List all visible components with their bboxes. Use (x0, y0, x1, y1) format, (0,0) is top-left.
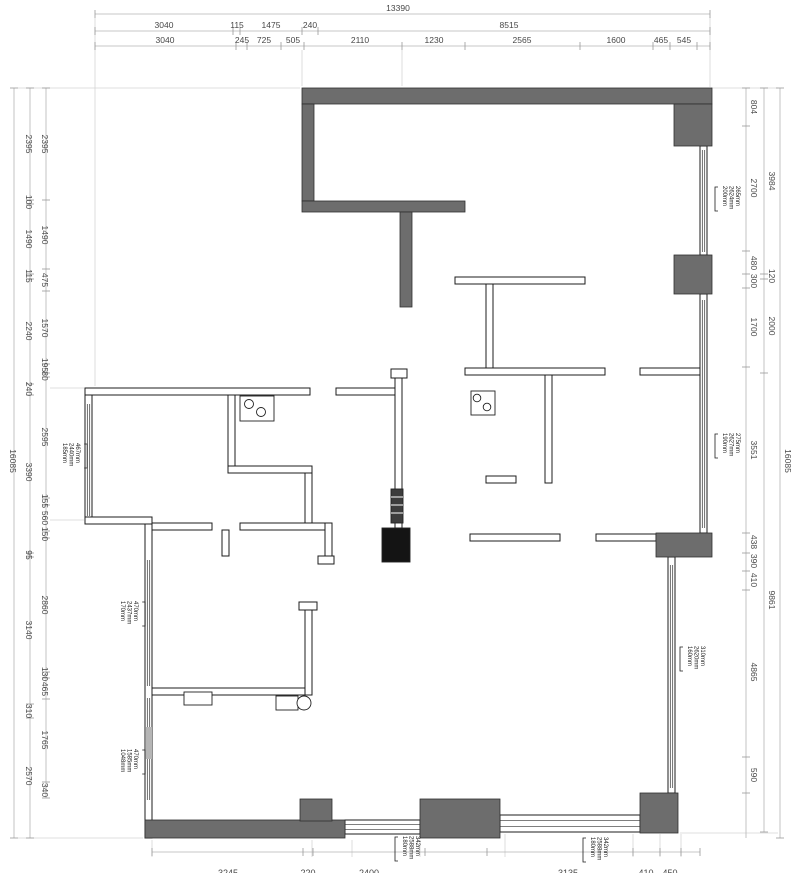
wall-bottom-mid (420, 799, 500, 838)
window-tag-bottom-right: 180mm2588mm342mm (583, 837, 608, 862)
window-tag-bracket (680, 647, 683, 671)
dim-label: 725 (257, 35, 271, 45)
window-tag-text: 265mm (734, 186, 740, 206)
window-tag-text: 185mm (61, 443, 67, 463)
window-tag-text: 2588mm (407, 836, 413, 859)
dim-label: 1700 (749, 318, 759, 337)
window-tag-left-low: 1048mm1585mm470mm (119, 749, 145, 774)
window-tag-text: 275mm (734, 433, 740, 453)
window-tag-bracket (715, 434, 718, 458)
wall-mid-horiz-a (465, 368, 605, 375)
dim-label: 1490 (40, 226, 50, 245)
dim-label: 2565 (513, 35, 532, 45)
dim-label: 240 (24, 382, 34, 396)
dim-label: 310 (24, 704, 34, 718)
dim-label: 2595 (40, 428, 50, 447)
dim-label: 130 (40, 667, 50, 681)
dim-label: 95 (24, 550, 34, 560)
dim-label: 3040 (155, 20, 174, 30)
window-tag-bracket (395, 837, 398, 861)
dim-label: 195 (40, 358, 50, 372)
wall-top (302, 88, 712, 104)
dim-label: 465 (40, 682, 50, 696)
dim-label: 1765 (40, 731, 50, 750)
dim-label: 2395 (40, 135, 50, 154)
dim-label: 4865 (749, 663, 759, 682)
dim-label: 410 (638, 868, 653, 873)
dim-chain-left-total: 16085 (8, 88, 18, 838)
window-tag-right-low: 160mm2620mm310mm (680, 646, 705, 671)
dim-label: 2395 (24, 135, 34, 154)
dim-label: 300 (749, 274, 759, 288)
wall-stub-vert (222, 530, 229, 556)
radiator-mid (391, 489, 403, 523)
dim-label: 2000 (767, 317, 777, 336)
dim-label: 410 (749, 573, 759, 587)
cooktop-left-box (240, 396, 274, 421)
dim-label: 13390 (386, 3, 410, 13)
wall-top-of-left-wing-b (336, 388, 396, 395)
window-tag-text: 190mm (721, 433, 727, 453)
window-tag-text: 2620mm (692, 646, 698, 669)
dim-label: 80 (40, 371, 50, 381)
dim-label: 1475 (262, 20, 281, 30)
window-tag-text: 467mm (74, 443, 80, 463)
dim-chain-right-inner: 8042700480300170035514383904104865590 (742, 88, 759, 838)
dim-label: 100 (24, 195, 34, 209)
dim-label: 115 (230, 20, 244, 30)
dim-label: 9861 (767, 591, 777, 610)
wall-entry-vert (302, 104, 314, 201)
dim-label: 2860 (40, 596, 50, 615)
wall-left-lower (145, 524, 152, 838)
window-tag-text: 470mm (132, 749, 138, 769)
dim-chain-top-total: 13390 (95, 3, 710, 18)
column-right-mid (674, 255, 712, 294)
window-tag-bracket (715, 187, 718, 211)
dim-label: 2110 (351, 35, 370, 45)
dim-label: 245 (235, 35, 249, 45)
wall-entry-horiz (302, 201, 465, 212)
cooktop-left-burner (245, 400, 254, 409)
dim-label: 2570 (24, 767, 34, 786)
wall-left-upper (85, 388, 92, 524)
dim-label: 16085 (783, 449, 793, 473)
wall-wc-east (305, 605, 312, 695)
wall-bath2-east (545, 375, 552, 483)
window-tag-text: 342mm (602, 837, 608, 857)
cooktop-right-burner (483, 403, 491, 411)
wall-room2-north (455, 277, 585, 284)
cooktop-left-burner (257, 408, 266, 417)
radiator-left (146, 727, 152, 759)
dim-label: 220 (300, 868, 315, 873)
window-tag-text: 2624mm (727, 186, 733, 209)
window-tag-text: 342mm (414, 836, 420, 856)
window-bottom-right-frame (500, 815, 640, 832)
wall-bath1-east (305, 473, 312, 530)
dim-label: 2240 (24, 322, 34, 341)
window-tag-text: 310mm (699, 646, 705, 666)
window-tag-right-mid: 190mm2627mm275mm (715, 433, 740, 458)
window-tag-text: 2440mm (67, 443, 73, 466)
wall-bed-north-a (470, 534, 560, 541)
column-bottom-right (640, 793, 678, 833)
dim-label: 3551 (749, 441, 759, 460)
appliance-dark (382, 528, 410, 562)
dim-label: 1490 (24, 230, 34, 249)
wall-room2-west (486, 284, 493, 372)
dim-label: 8515 (500, 20, 519, 30)
window-tag-text: 1048mm (119, 749, 125, 772)
wall-right-upper (700, 146, 707, 255)
window-tag-bracket (583, 838, 586, 862)
window-tag-text: 170mm (119, 601, 125, 621)
toilet-bowl (297, 696, 311, 710)
dim-chain-bottom: 324522024003135410450 (152, 848, 700, 873)
wall-bottom-bump (300, 799, 332, 821)
dim-label: 150 (40, 527, 50, 541)
wall-bath1-west (228, 395, 235, 473)
dim-chain-right-outer: 398412020009861 (760, 88, 777, 832)
window-tag-text: 2588mm (595, 837, 601, 860)
dim-label: 340 (40, 783, 50, 797)
dim-label: 1600 (607, 35, 626, 45)
wall-bed-north-b (596, 534, 656, 541)
dim-label: 120 (767, 269, 777, 283)
window-tag-right-top: 200mm2624mm265mm (715, 186, 740, 211)
window-tag-text: 2627mm (727, 433, 733, 456)
dim-label: 1570 (40, 319, 50, 338)
dim-label: 16085 (8, 449, 18, 473)
window-bottom-left-frame (345, 820, 420, 834)
dim-chain-top-row3: 30402457255052110123025651600465545 (95, 35, 710, 50)
dim-label: 3245 (218, 868, 238, 873)
dim-label: 3135 (558, 868, 578, 873)
dim-label: 438 (749, 535, 759, 549)
dim-label: 3984 (767, 172, 777, 191)
window-tag-text: 1585mm (125, 749, 131, 772)
dim-label: 2400 (359, 868, 379, 873)
wall-mid-horiz-b (640, 368, 702, 375)
column-right-step (656, 533, 712, 557)
wall-hall-east-cap (318, 556, 334, 564)
wall-wc-east-cap (299, 602, 317, 610)
dim-label: 3140 (24, 621, 34, 640)
wall-bottom-left (145, 820, 345, 838)
dim-label: 475 (40, 273, 50, 287)
wall-bath1-south (228, 466, 312, 473)
fixtures (146, 391, 495, 759)
dim-label: 545 (677, 35, 691, 45)
dim-label: 590 (749, 768, 759, 782)
window-tag-text: 160mm (686, 646, 692, 666)
wall-left-step (85, 517, 152, 524)
dim-label: 560 (40, 511, 50, 525)
wall-wc-north (152, 688, 312, 695)
wall-right-mid (700, 294, 707, 533)
window-tag-text: 180mm (401, 836, 407, 856)
wall-bath2-south (486, 476, 516, 483)
dim-label: 465 (654, 35, 668, 45)
window-tag-bottom-left: 180mm2588mm342mm (395, 836, 420, 861)
column-top-right (674, 104, 712, 146)
dim-label: 390 (749, 554, 759, 568)
window-tag-text: 470mm (132, 601, 138, 621)
window-tag-text: 180mm (589, 837, 595, 857)
wall-entry-vert2 (400, 212, 412, 307)
dim-label: 155 (40, 494, 50, 508)
cooktop-right-burner (473, 394, 481, 402)
dim-chain-right-total: 16085 (776, 88, 793, 838)
window-tag-text: 200mm (721, 186, 727, 206)
toilet-tank (276, 696, 298, 710)
dim-label: 3390 (24, 463, 34, 482)
floor-plan-page: 1339030401151475240851530402457255052110… (0, 0, 800, 873)
wall-kitchen-b (240, 523, 332, 530)
wall-kitchen-a (152, 523, 212, 530)
floor-plan-drawing: 1339030401151475240851530402457255052110… (0, 0, 800, 873)
wall-middle-cap (391, 369, 407, 378)
dim-label: 2700 (749, 179, 759, 198)
dim-label: 1230 (425, 35, 444, 45)
wall-top-of-left-wing-a (85, 388, 310, 395)
window-tag-left-top: 185mm2440mm467mm (61, 443, 87, 468)
dim-label: 240 (303, 20, 317, 30)
dim-label: 804 (749, 100, 759, 114)
window-tag-left-mid: 170mm2437mm470mm (119, 601, 145, 626)
window-tag-text: 2437mm (125, 601, 131, 624)
dim-label: 450 (662, 868, 677, 873)
wall-right-lower (668, 557, 675, 793)
dim-label: 3040 (156, 35, 175, 45)
door-leaf (184, 692, 212, 705)
dim-chain-top-row2: 304011514752408515 (95, 20, 710, 35)
dim-label: 505 (286, 35, 300, 45)
dim-label: 115 (24, 269, 34, 283)
dim-chain-left-inner: 2395149047515701958025951555601502860130… (40, 88, 50, 798)
dim-chain-left-outer: 23951001490115224024033909531403102570 (24, 88, 34, 838)
dim-label: 480 (749, 256, 759, 270)
